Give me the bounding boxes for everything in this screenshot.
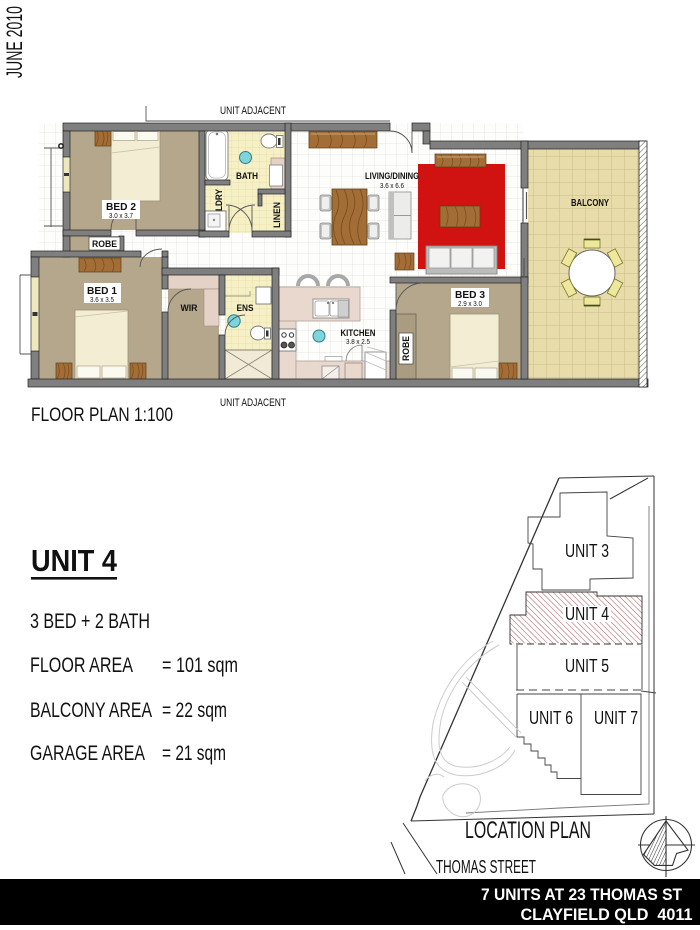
- svg-text:UNIT 4: UNIT 4: [31, 543, 118, 578]
- svg-text:= 22 sqm: = 22 sqm: [162, 698, 227, 722]
- svg-text:BATH: BATH: [236, 171, 258, 182]
- svg-text:3.6 x 3.5: 3.6 x 3.5: [90, 297, 114, 304]
- svg-text:UNIT 7: UNIT 7: [594, 708, 638, 728]
- svg-text:= 101 sqm: = 101 sqm: [162, 653, 238, 677]
- svg-text:3 BED + 2 BATH: 3 BED + 2 BATH: [30, 609, 150, 633]
- svg-text:GARAGE AREA: GARAGE AREA: [30, 741, 145, 765]
- svg-text:UNIT 4: UNIT 4: [565, 604, 609, 624]
- svg-text:UNIT 6: UNIT 6: [529, 708, 573, 728]
- svg-text:= 21 sqm: = 21 sqm: [162, 741, 226, 765]
- svg-text:ENS: ENS: [237, 303, 254, 314]
- svg-text:LDRY: LDRY: [214, 188, 225, 211]
- svg-text:UNIT ADJACENT: UNIT ADJACENT: [220, 105, 286, 117]
- svg-text:3.8 x 2.5: 3.8 x 2.5: [346, 339, 370, 346]
- svg-text:ROBE: ROBE: [401, 336, 412, 361]
- svg-text:LIVING/DINING: LIVING/DINING: [365, 171, 419, 182]
- svg-text:LOCATION PLAN: LOCATION PLAN: [465, 817, 591, 844]
- svg-text:2.9 x 3.0: 2.9 x 3.0: [458, 301, 482, 308]
- svg-text:BALCONY AREA: BALCONY AREA: [30, 698, 152, 722]
- svg-text:ROBE: ROBE: [92, 239, 117, 250]
- svg-text:7 UNITS AT 23 THOMAS ST: 7 UNITS AT 23 THOMAS ST: [481, 885, 683, 904]
- svg-text:FLOOR PLAN 1:100: FLOOR PLAN 1:100: [31, 404, 173, 426]
- svg-text:THOMAS STREET: THOMAS STREET: [436, 857, 536, 877]
- svg-text:WIR: WIR: [181, 303, 198, 314]
- svg-text:UNIT 5: UNIT 5: [565, 656, 609, 676]
- svg-text:BED 2: BED 2: [106, 201, 136, 213]
- svg-text:FLOOR AREA: FLOOR AREA: [30, 653, 133, 677]
- svg-text:LINEN: LINEN: [272, 202, 283, 228]
- svg-text:CLAYFIELD QLD 4011: CLAYFIELD QLD 4011: [521, 905, 693, 924]
- svg-text:BALCONY: BALCONY: [571, 198, 609, 209]
- svg-text:3.6 x 6.6: 3.6 x 6.6: [380, 183, 404, 190]
- svg-text:KITCHEN: KITCHEN: [341, 328, 376, 339]
- svg-text:BED 3: BED 3: [455, 289, 485, 301]
- svg-text:3.0 x 3.7: 3.0 x 3.7: [109, 213, 133, 220]
- svg-text:JUNE 2010: JUNE 2010: [2, 6, 27, 78]
- svg-text:BED 1: BED 1: [87, 285, 117, 297]
- svg-text:UNIT ADJACENT: UNIT ADJACENT: [220, 397, 286, 409]
- svg-text:UNIT 3: UNIT 3: [565, 541, 609, 561]
